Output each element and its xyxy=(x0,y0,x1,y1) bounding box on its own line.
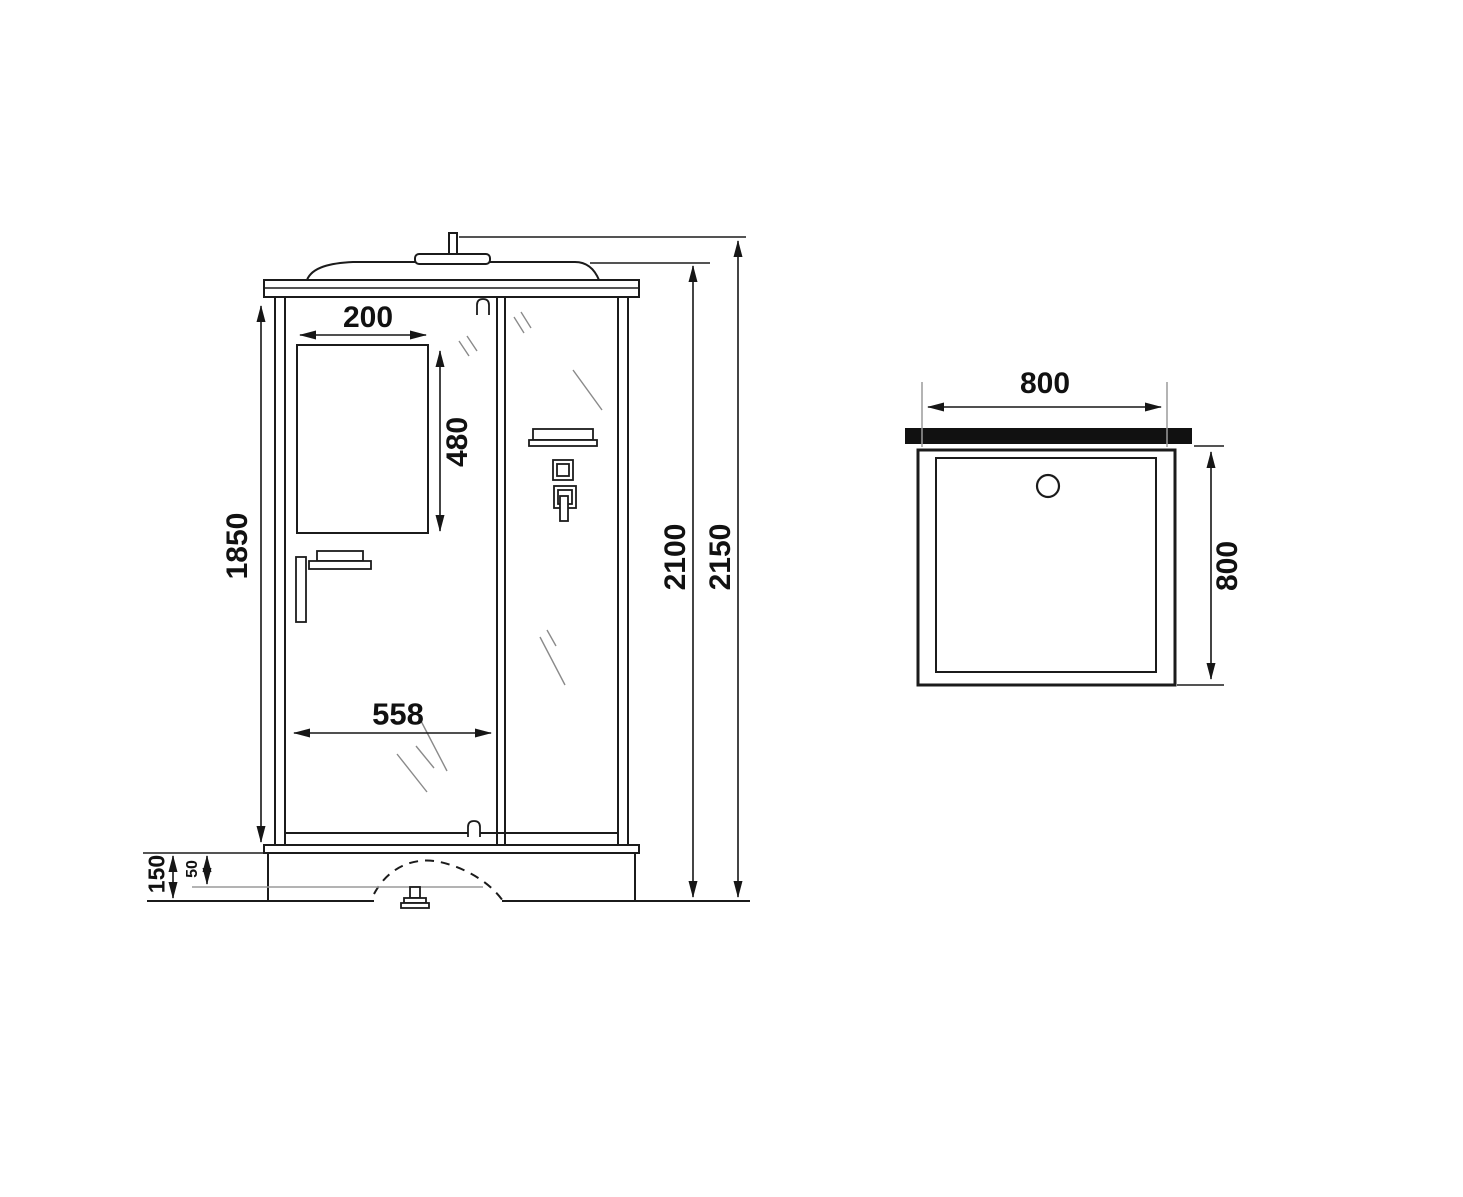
label-tray-width: 800 xyxy=(1020,369,1070,399)
tray-top-strip xyxy=(264,845,639,853)
pipe-cap xyxy=(415,254,490,264)
label-tray-inner-offset: 50 xyxy=(185,860,201,878)
technical-drawing-canvas: 200 480 1850 558 2100 2150 150 50 800 80… xyxy=(0,0,1463,1197)
center-divider xyxy=(497,297,505,845)
label-body-height: 1850 xyxy=(223,513,253,580)
label-window-height: 480 xyxy=(443,417,473,467)
door-shelf xyxy=(309,551,371,569)
door-handle xyxy=(296,557,306,622)
label-overall-height: 2150 xyxy=(706,524,736,591)
door-hinge-bottom xyxy=(468,821,480,837)
apron-cutout-arc xyxy=(374,861,503,901)
label-tray-height: 150 xyxy=(146,855,169,893)
label-cabin-height: 2100 xyxy=(661,524,691,591)
right-frame xyxy=(618,297,628,845)
control-knob xyxy=(553,460,573,480)
tray-outer xyxy=(918,450,1175,685)
leveling-foot xyxy=(401,887,429,908)
tray-inner xyxy=(936,458,1156,672)
label-door-width: 558 xyxy=(372,699,424,730)
label-tray-depth: 800 xyxy=(1213,541,1243,591)
dimension-lines-front xyxy=(173,241,738,898)
left-frame xyxy=(275,297,285,845)
drawing-linework xyxy=(0,0,1463,1197)
door-hinge-top xyxy=(477,299,489,315)
door-window xyxy=(297,345,428,533)
back-wall-bar xyxy=(905,428,1192,444)
dimension-lines-top xyxy=(928,407,1211,679)
label-window-width: 200 xyxy=(343,303,393,333)
drain-hole xyxy=(1037,475,1059,497)
top-view-drawing xyxy=(905,382,1224,685)
panel-shelf xyxy=(529,429,597,446)
mixer-handle xyxy=(554,486,576,521)
